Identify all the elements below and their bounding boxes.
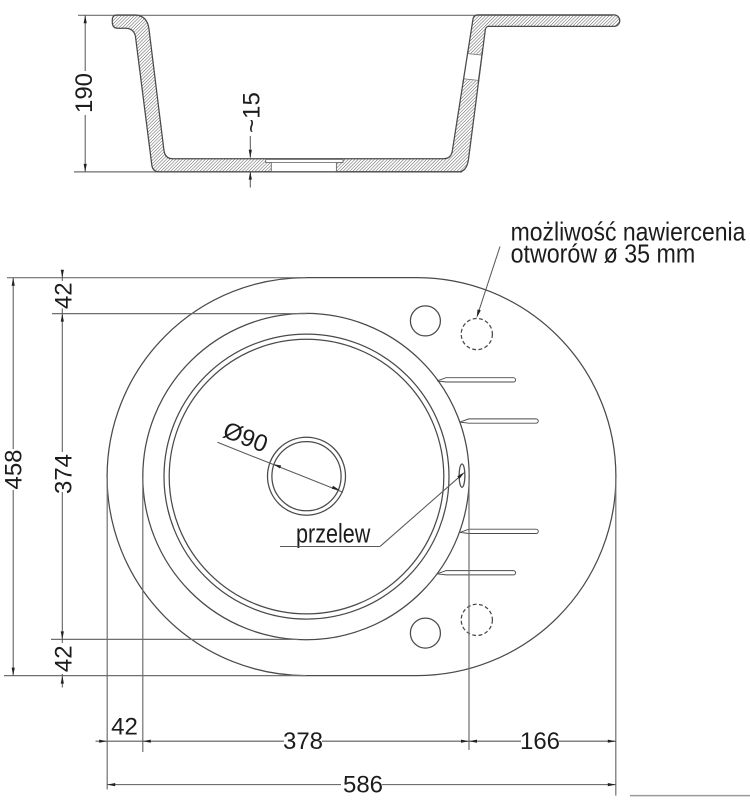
svg-text:190: 190 (71, 73, 98, 113)
svg-text:166: 166 (520, 728, 560, 755)
svg-text:otworów ø 35 mm: otworów ø 35 mm (511, 240, 696, 268)
svg-text:42: 42 (51, 282, 78, 309)
svg-text:586: 586 (343, 771, 383, 798)
svg-text:458: 458 (1, 449, 28, 489)
svg-text:42: 42 (51, 645, 78, 672)
svg-text:przelew: przelew (296, 520, 371, 550)
svg-text:378: 378 (283, 728, 323, 755)
svg-text:374: 374 (51, 454, 78, 494)
svg-text:~15: ~15 (239, 92, 266, 133)
svg-text:42: 42 (111, 714, 138, 741)
svg-text:Ø90: Ø90 (219, 417, 271, 458)
